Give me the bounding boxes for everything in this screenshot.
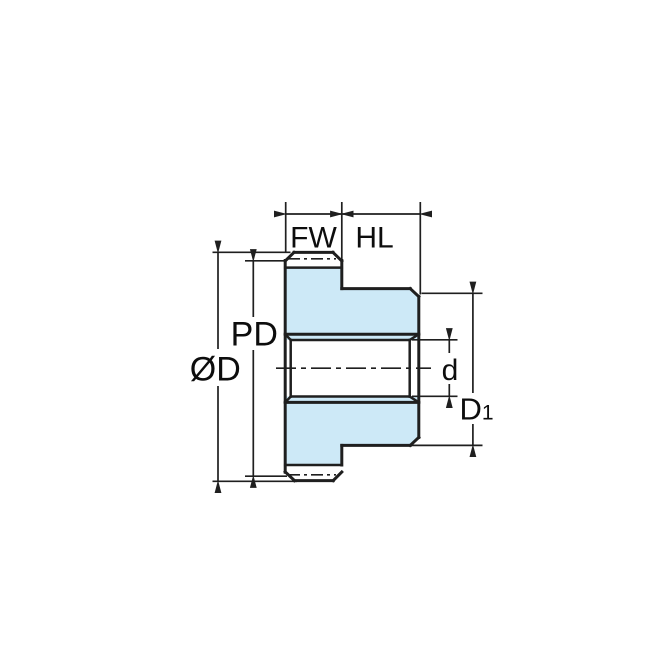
label-pitch-diameter: PD <box>231 316 278 354</box>
label-face-width: FW <box>290 222 337 255</box>
label-hub-length: HL <box>355 222 393 255</box>
gear-upper-body <box>285 268 419 340</box>
diagram-canvas: FW HL PD ØD d D1 <box>0 0 670 670</box>
label-hub-diameter-base: D <box>460 392 482 427</box>
label-hub-diameter: D1 <box>460 392 494 427</box>
label-bore-diameter: d <box>442 354 459 387</box>
gear-lower-body <box>285 397 419 466</box>
label-hub-diameter-subscript: 1 <box>482 402 494 425</box>
label-outside-diameter: ØD <box>190 351 241 389</box>
gear-dimension-diagram: FW HL PD ØD d D1 <box>0 0 670 670</box>
